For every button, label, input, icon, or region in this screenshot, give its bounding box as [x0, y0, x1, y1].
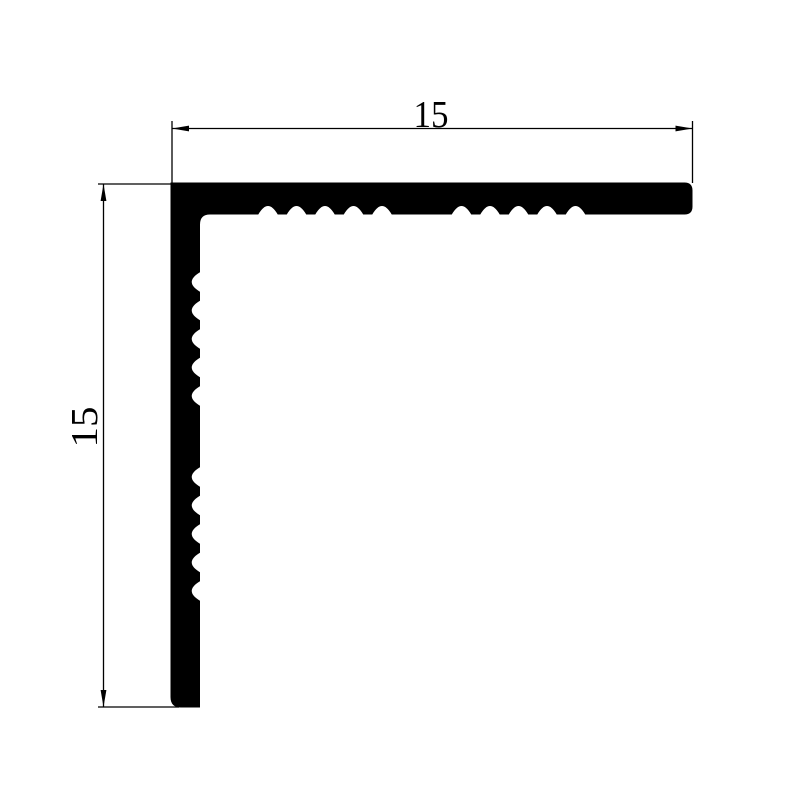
arrowhead-left-top-icon [101, 184, 107, 201]
arrowhead-top-left-icon [172, 126, 189, 132]
arrowhead-left-bottom-icon [101, 690, 107, 707]
drawing-canvas: 15 15 [0, 0, 800, 800]
dimension-label-top: 15 [414, 94, 449, 136]
arrowhead-top-right-icon [676, 126, 693, 132]
l-angle-profile-shape [171, 183, 692, 707]
technical-drawing: 15 15 [0, 0, 800, 800]
dimension-label-left: 15 [64, 407, 106, 448]
